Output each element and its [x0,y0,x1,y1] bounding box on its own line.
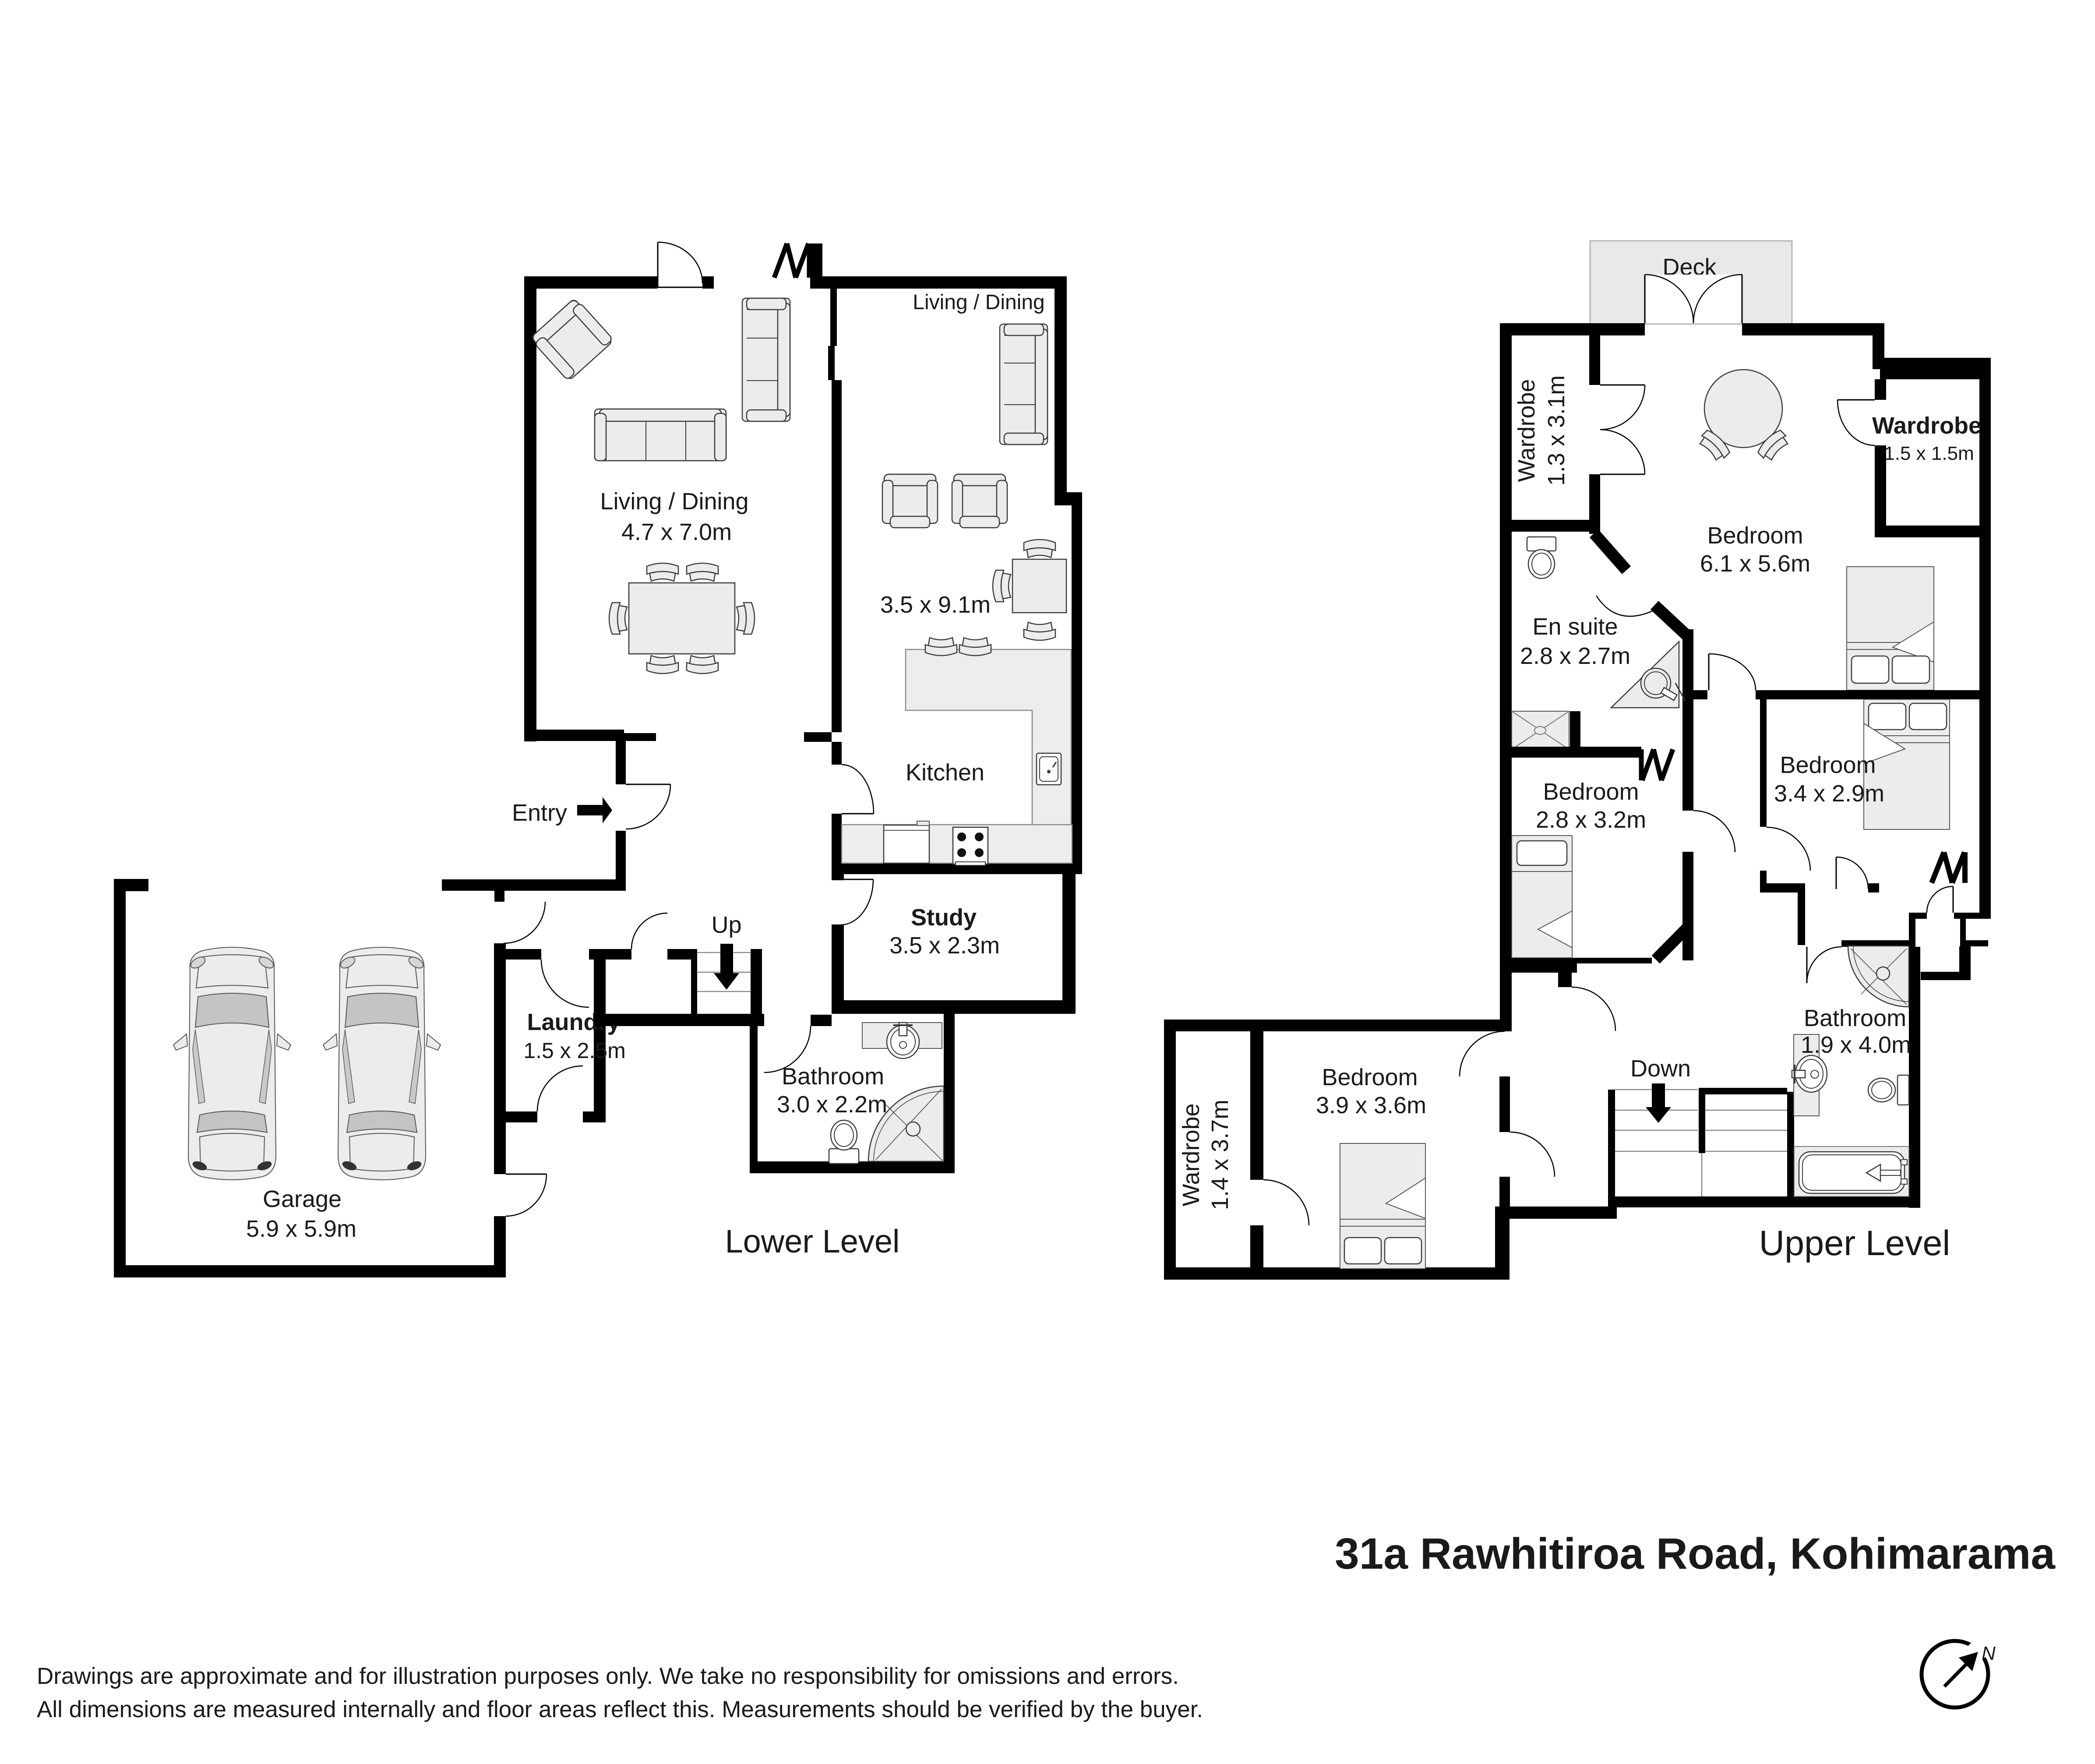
svg-text:Bedroom: Bedroom [1543,779,1639,805]
svg-text:Upper Level: Upper Level [1759,1224,1950,1263]
svg-text:En suite: En suite [1532,614,1618,640]
svg-text:Up: Up [711,912,741,938]
svg-text:Bedroom: Bedroom [1780,752,1876,778]
svg-text:1.4 x 3.7m: 1.4 x 3.7m [1207,1100,1233,1210]
svg-text:3.5 x 9.1m: 3.5 x 9.1m [880,592,991,618]
svg-text:3.5 x 2.3m: 3.5 x 2.3m [889,932,1000,959]
svg-text:Bathroom: Bathroom [782,1063,884,1090]
svg-text:4.7 x 7.0m: 4.7 x 7.0m [621,519,732,545]
svg-text:3.9 x 3.6m: 3.9 x 3.6m [1316,1092,1426,1118]
svg-text:1.3 x 3.1m: 1.3 x 3.1m [1543,375,1569,486]
svg-text:Lower Level: Lower Level [725,1223,899,1259]
svg-text:Drawings are approximate and f: Drawings are approximate and for illustr… [37,1663,1179,1689]
svg-text:Living / Dining: Living / Dining [600,488,748,515]
svg-text:Bathroom: Bathroom [1804,1005,1906,1031]
svg-text:6.1 x 5.6m: 6.1 x 5.6m [1700,550,1810,577]
svg-text:1.5 x 2.5m: 1.5 x 2.5m [523,1038,625,1063]
svg-text:Kitchen: Kitchen [906,759,984,786]
svg-text:3.4 x 2.9m: 3.4 x 2.9m [1774,780,1884,807]
svg-text:All dimensions are measured in: All dimensions are measured internally a… [37,1697,1203,1722]
svg-text:Garage: Garage [263,1186,342,1212]
svg-text:Down: Down [1630,1055,1691,1082]
svg-text:5.9 x 5.9m: 5.9 x 5.9m [246,1216,356,1242]
svg-text:Wardrobe: Wardrobe [1178,1103,1204,1206]
svg-text:N: N [1982,1643,1996,1664]
svg-text:31a Rawhitiroa Road, Kohimaram: 31a Rawhitiroa Road, Kohimarama [1335,1529,2056,1578]
svg-text:3.0 x 2.2m: 3.0 x 2.2m [777,1091,887,1118]
svg-text:Wardrobe: Wardrobe [1872,413,1982,439]
svg-text:2.8 x 3.2m: 2.8 x 3.2m [1536,807,1646,833]
svg-text:Wardrobe: Wardrobe [1513,379,1540,482]
svg-text:Entry: Entry [512,800,567,826]
svg-text:1.5 x 1.5m: 1.5 x 1.5m [1884,443,1974,464]
svg-text:Bedroom: Bedroom [1322,1064,1418,1090]
svg-text:1.9 x 4.0m: 1.9 x 4.0m [1801,1032,1911,1058]
svg-text:Study: Study [911,904,977,931]
svg-text:Bedroom: Bedroom [1707,522,1803,549]
svg-text:Living / Dining: Living / Dining [913,291,1045,314]
svg-text:2.8 x 2.7m: 2.8 x 2.7m [1520,643,1630,669]
